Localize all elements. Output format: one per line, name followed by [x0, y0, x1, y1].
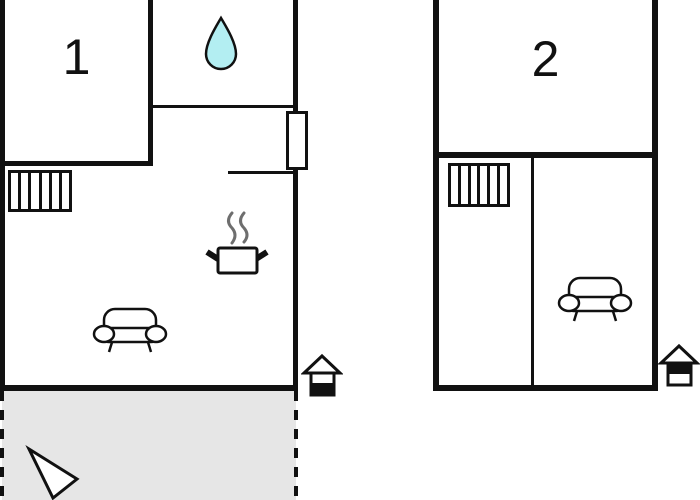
unit1-wall-room-divider [148, 0, 153, 166]
unit2-wall-interior [531, 158, 534, 388]
unit-1-label: 1 [5, 32, 148, 82]
unit-2-label: 2 [439, 34, 652, 84]
north-arrow-icon [22, 444, 82, 500]
unit2-wall-bottom [433, 385, 658, 391]
unit2-wall-right [652, 0, 658, 391]
unit2-wall-divider [433, 152, 658, 158]
terrace-dashed-border-left [0, 391, 4, 500]
unit1-wall-right-upper [293, 0, 298, 114]
door-icon [286, 111, 308, 170]
upper-floor-house-icon [658, 343, 700, 387]
unit1-wall-right-lower [293, 167, 298, 391]
unit1-wall-bathroom-bottom [151, 105, 298, 108]
terrace-dashed-border-right [294, 391, 298, 500]
stairs-icon [448, 163, 510, 207]
sofa-icon [557, 275, 633, 323]
stairs-icon [8, 170, 72, 212]
sofa-icon [92, 306, 168, 354]
ground-floor-house-icon [301, 353, 343, 397]
water-drop-icon [203, 15, 239, 72]
unit1-wall-room1-bottom [0, 161, 153, 166]
unit1-wall-hall [228, 171, 298, 174]
cooking-pot-icon [202, 210, 272, 276]
floor-plan-canvas: 1 [0, 0, 700, 500]
